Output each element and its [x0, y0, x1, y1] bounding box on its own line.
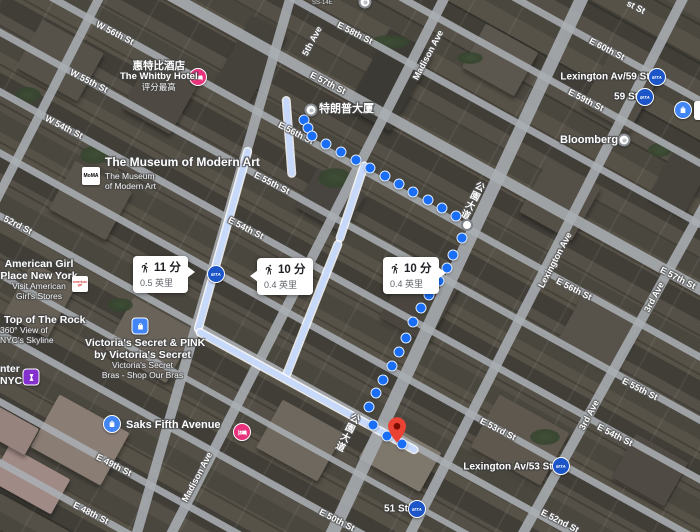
walking-person-icon — [390, 263, 401, 274]
poi-bloomberg[interactable]: Bloomberg — [560, 134, 618, 147]
bubble-distance: 0.4 英里 — [264, 278, 306, 291]
route-dot — [457, 233, 468, 244]
route-dot — [336, 147, 347, 158]
bag-glyph-icon — [136, 322, 144, 330]
route-dot — [378, 375, 389, 386]
street-label: st St — [625, 0, 647, 16]
avenue-label: 3rd Ave — [642, 280, 666, 313]
american-girl-logo-icon[interactable]: american girl — [72, 276, 88, 292]
bag-glyph-icon — [679, 106, 687, 114]
poi-trump-name: 特朗普大厦 — [319, 103, 374, 116]
poi-victorias-secret[interactable]: Victoria's Secret & PINK by Victoria's S… — [85, 337, 200, 381]
route-dot — [380, 171, 391, 182]
street-label: E 54th St — [227, 215, 266, 241]
station-label: Lexington Av/53 St — [463, 462, 552, 473]
bubble-minutes: 10 分 — [404, 260, 432, 276]
bubble-tail — [438, 267, 446, 279]
poi-ag-line1: American Girl — [0, 258, 78, 270]
route-dot — [437, 203, 448, 214]
poi-nter-line1: nter — [0, 363, 22, 375]
shopping-circle-icon[interactable] — [674, 101, 692, 119]
street-label: W 56th St — [94, 19, 135, 47]
poi-moma[interactable]: The Museum of Modern Art The Museum of M… — [105, 156, 260, 191]
bubble-tail — [250, 270, 258, 282]
clipped-label — [694, 101, 700, 120]
poi-trump-tower[interactable]: 特朗普大厦 — [319, 103, 374, 116]
street-label: E 48th St — [72, 500, 111, 526]
route-dot — [365, 163, 376, 174]
street-label: W 54th St — [43, 113, 84, 141]
poi-saks[interactable]: Saks Fifth Avenue — [126, 419, 221, 432]
route-dot — [394, 347, 405, 358]
poi-tor-line3: NYC's Skyline — [0, 336, 85, 346]
route-dot — [351, 155, 362, 166]
mta-icon[interactable]: MTA — [207, 265, 225, 283]
street-label: E 54th St — [596, 422, 635, 448]
route-time-bubble[interactable]: 11 分0.5 英里 — [133, 256, 188, 293]
poi-vs-line1: Victoria's Secret & PINK — [85, 337, 200, 349]
trees — [457, 52, 483, 64]
poi-moma-title: The Museum of Modern Art — [105, 156, 260, 170]
poi-top-of-the-rock[interactable]: Top of The Rock 360° View of NYC's Skyli… — [0, 314, 85, 346]
route-dot — [371, 388, 382, 399]
bubble-minutes-row: 11 分 — [140, 259, 181, 275]
poi-top-partial-text: SS-14E — [312, 0, 333, 7]
street-label: E 55th St — [621, 376, 660, 402]
route-dot — [451, 211, 462, 222]
top-marker-dot[interactable] — [359, 0, 372, 9]
walking-person-icon — [140, 262, 151, 273]
route-dot — [416, 303, 427, 314]
bubble-minutes-row: 10 分 — [264, 261, 306, 277]
poi-ag-line4: Girl's Stores — [0, 292, 78, 302]
route-dot — [423, 195, 434, 206]
route-dot — [394, 179, 405, 190]
shopping-bag-icon[interactable] — [132, 318, 149, 335]
station-label: 59 St — [614, 92, 638, 103]
poi-saks-name: Saks Fifth Avenue — [126, 419, 221, 432]
poi-moma-line3: of Modern Art — [105, 182, 260, 192]
poi-nter-line2: NYC — [0, 375, 22, 387]
ag-logo-line2: girl — [78, 284, 83, 288]
hotel-icon[interactable] — [233, 423, 251, 441]
bubble-minutes-row: 10 分 — [390, 260, 432, 276]
mta-icon[interactable]: MTA — [636, 88, 654, 106]
attraction-icon[interactable] — [23, 369, 40, 386]
mta-icon[interactable]: MTA — [408, 500, 426, 518]
poi-vs-line4: Bras - Shop Our Bras — [85, 371, 200, 381]
bubble-tail — [187, 266, 195, 278]
poi-whitby-hotel[interactable]: 惠特比酒店 The Whitby Hotel 评分最高 — [120, 60, 198, 93]
bubble-distance: 0.4 英里 — [390, 277, 432, 290]
trees — [530, 429, 560, 445]
route-time-bubble[interactable]: 10 分0.4 英里 — [383, 257, 439, 294]
poi-bloomberg-name: Bloomberg — [560, 134, 618, 147]
bubble-distance: 0.5 英里 — [140, 276, 181, 289]
bubble-minutes: 11 分 — [154, 259, 181, 275]
route-dot — [387, 361, 398, 372]
avenue-label: 5th Ave — [300, 25, 324, 58]
avenue-label: Madison Ave — [180, 450, 215, 503]
poi-whitby-line3: 评分最高 — [120, 83, 198, 93]
map-canvas[interactable]: 惠特比酒店 The Whitby Hotel 评分最高 The Museum o… — [0, 0, 700, 532]
moma-logo-text: MoMA — [84, 173, 99, 179]
walking-person-icon — [264, 264, 275, 275]
route-dot — [448, 250, 459, 261]
hourglass-icon — [27, 373, 35, 381]
route-dot — [364, 402, 375, 413]
shopping-circle-icon[interactable] — [103, 415, 121, 433]
poi-american-girl[interactable]: American Girl Place New York Visit Ameri… — [0, 258, 78, 302]
trees — [107, 298, 133, 312]
route-waypoint-dot[interactable] — [461, 219, 473, 231]
route-dot — [321, 139, 332, 150]
route-dot — [368, 420, 379, 431]
street-label: 52rd St — [2, 214, 34, 237]
bag-glyph-icon — [108, 420, 116, 428]
bed-icon — [238, 428, 247, 437]
street-label: E 58th St — [336, 20, 375, 46]
street-label: E 57th St — [309, 70, 348, 96]
poi-center-nyc[interactable]: nter NYC — [0, 363, 22, 387]
trump-marker-dot[interactable] — [305, 104, 318, 117]
station-label: 51 St — [384, 504, 408, 515]
bubble-minutes: 10 分 — [278, 261, 306, 277]
mta-icon[interactable]: MTA — [648, 68, 666, 86]
route-time-bubble[interactable]: 10 分0.4 英里 — [257, 258, 313, 295]
bloomberg-marker-dot[interactable] — [618, 134, 631, 147]
route-dot — [401, 333, 412, 344]
station-label: Lexington Av/59 St — [560, 72, 649, 83]
poi-top-partial: SS-14E — [312, 0, 333, 7]
route-dot — [408, 187, 419, 198]
route-dot — [307, 131, 318, 142]
moma-logo-icon[interactable]: MoMA — [82, 167, 100, 185]
destination-pin[interactable] — [388, 417, 406, 443]
mta-icon[interactable]: MTA — [552, 457, 570, 475]
route-dot — [408, 317, 419, 328]
